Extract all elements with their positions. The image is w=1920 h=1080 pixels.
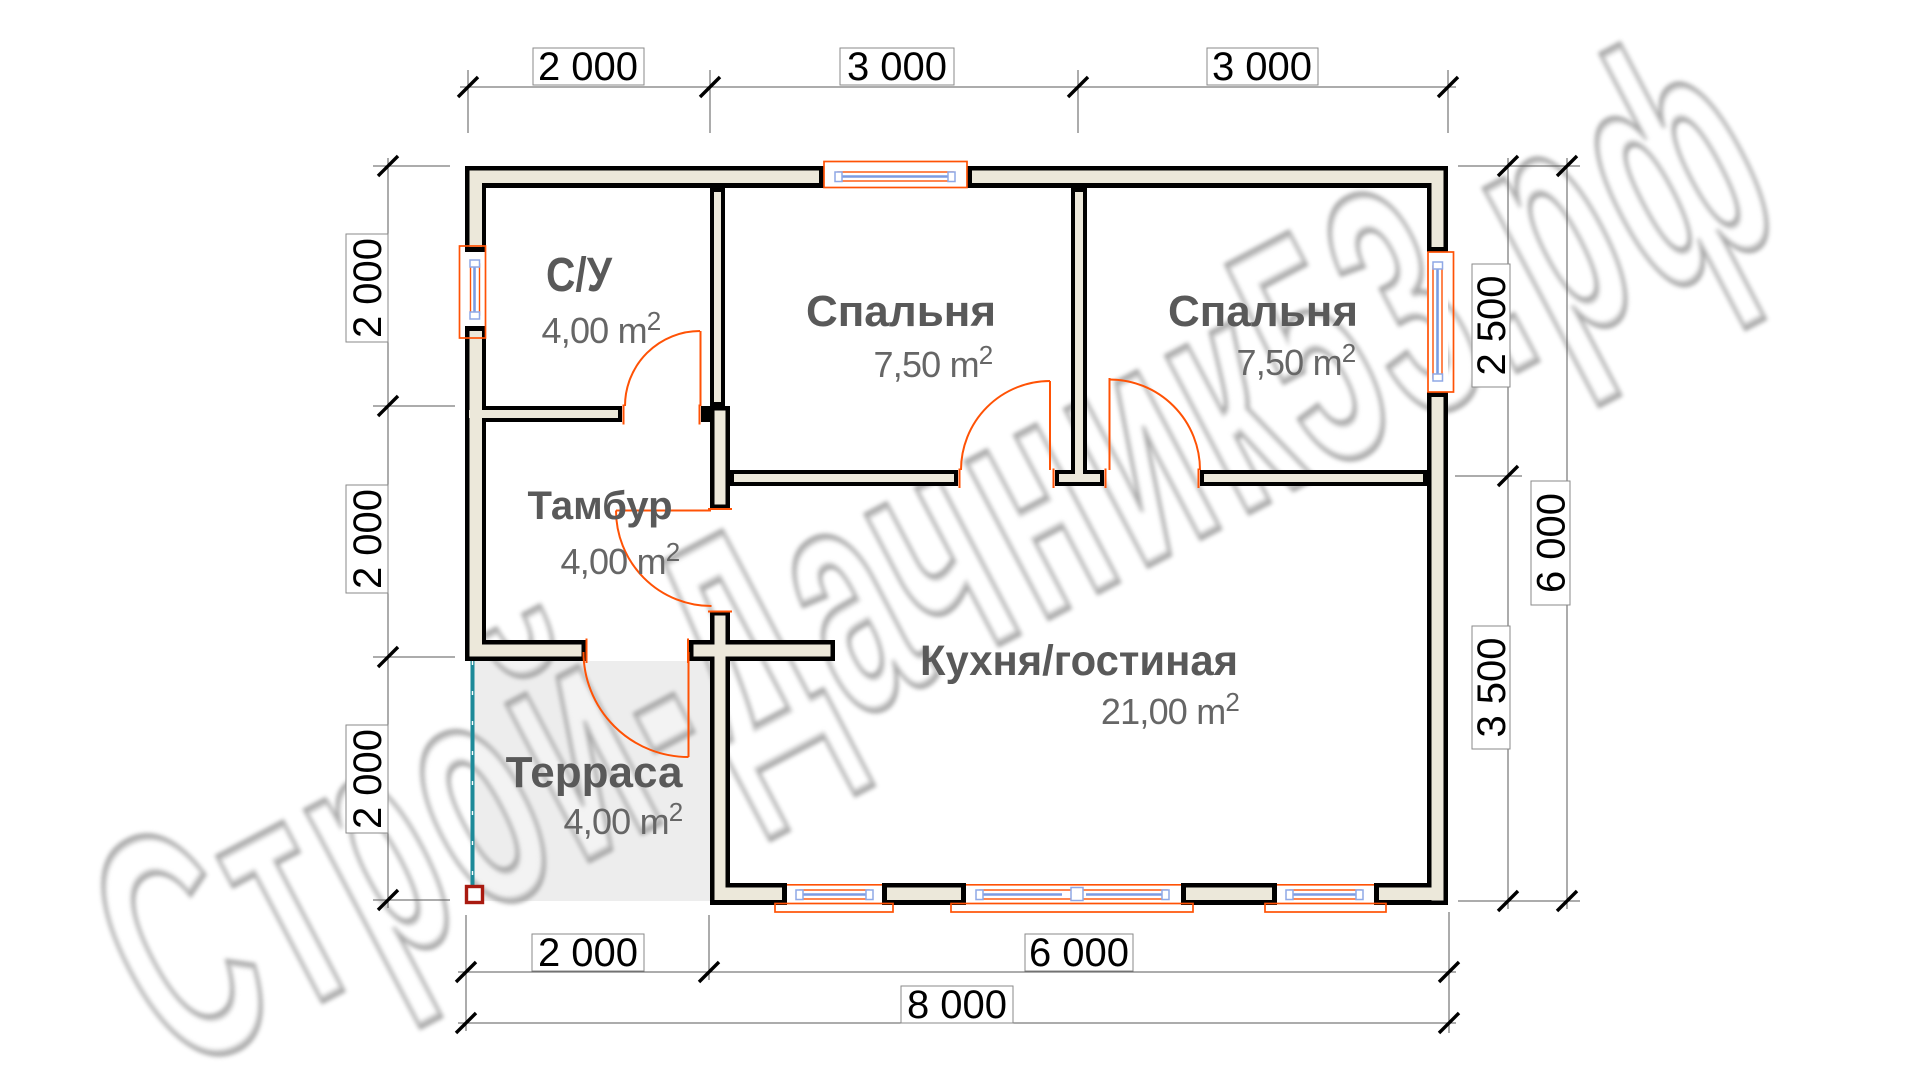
- svg-text:21,00 m2: 21,00 m2: [1101, 687, 1239, 732]
- svg-text:3 500: 3 500: [1470, 637, 1514, 737]
- svg-text:2 000: 2 000: [538, 931, 638, 975]
- svg-text:Кухня/гостиная: Кухня/гостиная: [920, 637, 1238, 685]
- svg-text:2 000: 2 000: [346, 729, 390, 829]
- svg-text:2 000: 2 000: [346, 238, 390, 338]
- svg-text:Тамбур: Тамбур: [527, 484, 672, 528]
- svg-text:4,00 m2: 4,00 m2: [561, 537, 680, 582]
- svg-text:Спальня: Спальня: [806, 287, 996, 336]
- svg-text:Спальня: Спальня: [1168, 287, 1358, 336]
- svg-text:3 000: 3 000: [1212, 45, 1312, 89]
- svg-text:2 000: 2 000: [538, 45, 638, 89]
- svg-text:С/У: С/У: [546, 249, 613, 302]
- svg-text:7,50 m2: 7,50 m2: [874, 340, 993, 385]
- svg-text:Терраса: Терраса: [506, 748, 683, 797]
- svg-text:3 000: 3 000: [847, 45, 947, 89]
- svg-text:7,50 m2: 7,50 m2: [1237, 338, 1356, 383]
- svg-text:8 000: 8 000: [907, 983, 1007, 1027]
- svg-text:6 000: 6 000: [1530, 493, 1574, 593]
- svg-text:2 500: 2 500: [1470, 275, 1514, 375]
- svg-text:4,00 m2: 4,00 m2: [564, 797, 683, 842]
- svg-text:4,00 m2: 4,00 m2: [542, 306, 661, 351]
- svg-text:6 000: 6 000: [1029, 931, 1129, 975]
- svg-text:2 000: 2 000: [346, 489, 390, 589]
